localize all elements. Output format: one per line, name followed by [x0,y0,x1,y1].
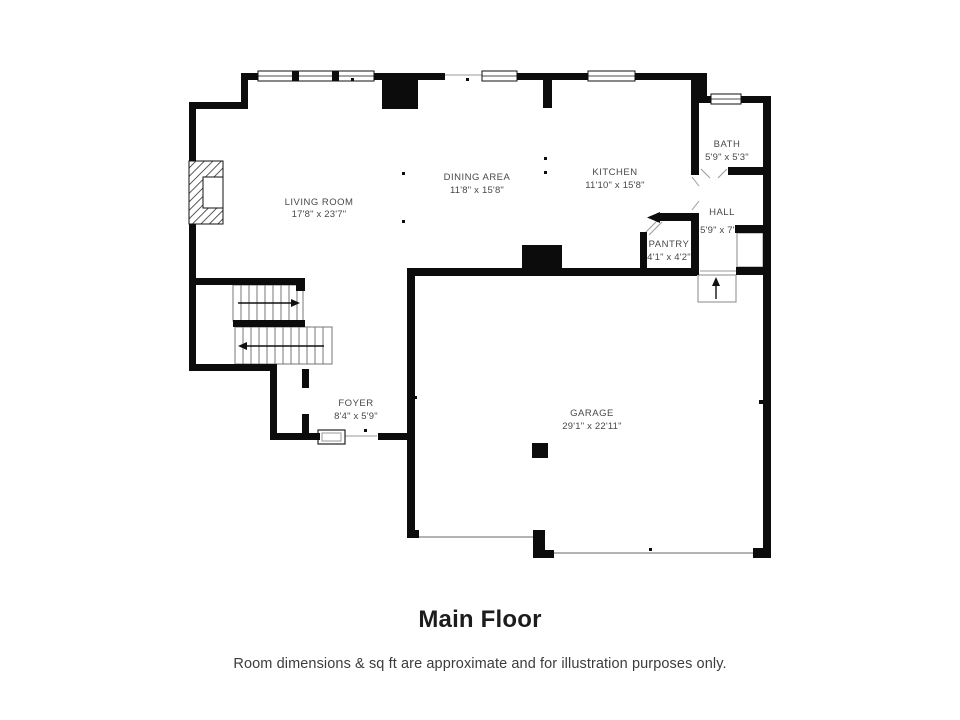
room-dims-kitchen: 11'10" x 15'8" [585,180,644,191]
bath-bottom-wall [728,167,771,175]
kitchen-bath-divider [691,80,699,175]
room-dims-garage: 29'1" x 22'11" [562,421,621,432]
foyer-wall-stub [302,369,309,388]
room-label-foyer: FOYER [338,398,373,409]
living-room-triple-window [258,71,374,81]
room-dims-dining-area: 11'8" x 15'8" [450,185,504,196]
room-dims-foyer: 8'4" x 5'9" [334,411,378,422]
dining-kitchen-divider [543,73,552,108]
room-dims-bath: 5'9" x 5'3" [705,152,749,163]
room-dims-pantry: 4'1" x 4'2" [647,252,691,263]
room-label-dining-area: DINING AREA [444,172,511,183]
garage-left-wall [407,268,415,538]
room-label-hall: HALL [709,207,735,218]
room-label-living-room: LIVING ROOM [285,197,354,208]
room-label-kitchen: KITCHEN [592,167,637,178]
stair-mid-wall [233,320,305,327]
pantry-top-wall [657,213,699,221]
page-title: Main Floor [0,606,960,634]
hall-bottom-wall [736,267,771,275]
bath-window [711,94,741,104]
garage-post [532,443,548,458]
hall-closet-stub-wall [735,225,771,233]
stair-top-wall [189,278,303,285]
firebox [203,177,223,208]
floor-plan-page: LIVING ROOM 17'8" x 23'7" DINING AREA 11… [0,0,960,720]
pantry-left-wall [640,232,647,276]
room-label-garage: GARAGE [570,408,614,419]
chimney-block [382,74,418,109]
room-dims-living-room: 17'8" x 23'7" [292,209,347,220]
dining-window [482,71,517,81]
entry-stoop [698,271,736,302]
disclaimer-text: Room dimensions & sq ft are approximate … [0,656,960,672]
room-label-bath: BATH [714,139,741,150]
room-label-pantry: PANTRY [649,239,690,250]
kitchen-window [588,71,635,81]
front-door [318,430,345,444]
fireplace [189,161,223,224]
